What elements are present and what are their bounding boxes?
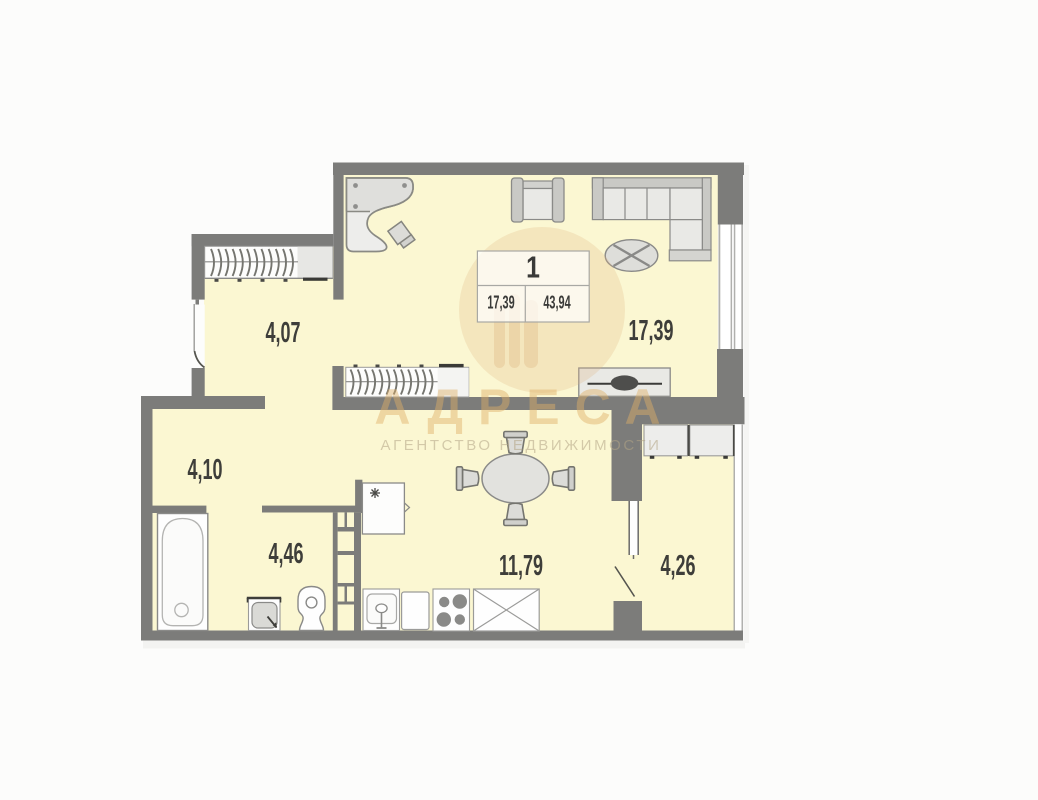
svg-text:17,39: 17,39 bbox=[629, 315, 674, 347]
svg-text:4,46: 4,46 bbox=[269, 538, 304, 570]
svg-text:1: 1 bbox=[526, 250, 540, 284]
svg-text:43,94: 43,94 bbox=[543, 293, 571, 314]
svg-text:АГЕНТСТВО НЕДВИЖИМОСТИ: АГЕНТСТВО НЕДВИЖИМОСТИ bbox=[380, 437, 661, 454]
svg-text:17,39: 17,39 bbox=[487, 293, 514, 314]
svg-text:АДРЕСА: АДРЕСА bbox=[374, 379, 675, 435]
svg-text:4,07: 4,07 bbox=[266, 317, 301, 349]
svg-text:4,26: 4,26 bbox=[661, 550, 696, 582]
svg-text:11,79: 11,79 bbox=[499, 550, 543, 582]
svg-text:4,10: 4,10 bbox=[188, 454, 223, 486]
